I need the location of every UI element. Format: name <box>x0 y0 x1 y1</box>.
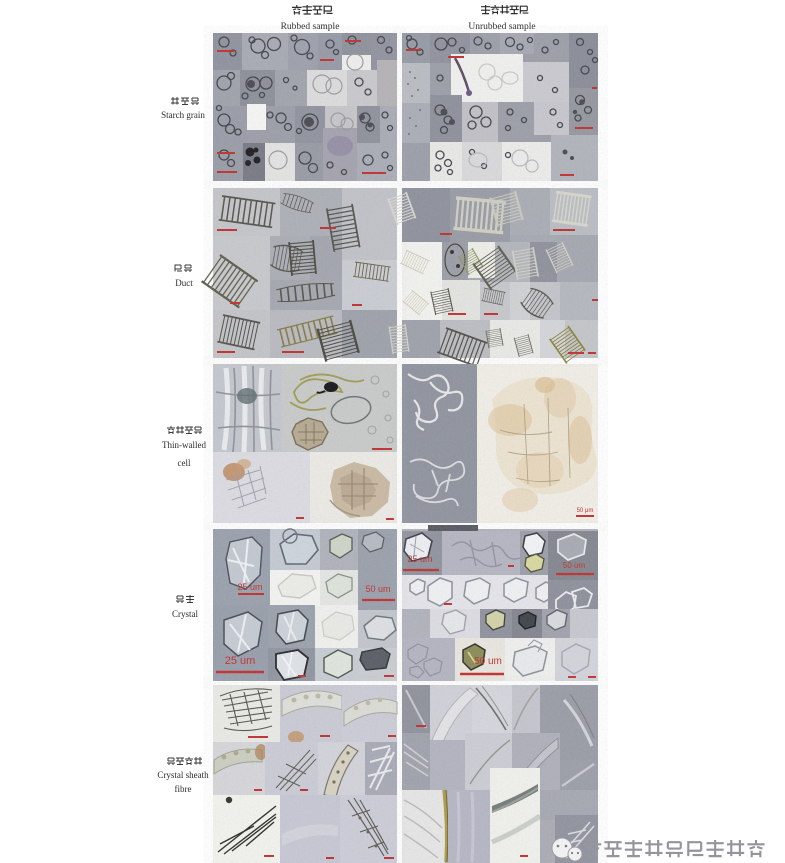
svg-text:cell: cell <box>178 458 191 468</box>
svg-text:Crystal: Crystal <box>172 609 198 619</box>
svg-text:Rubbed sample: Rubbed sample <box>281 22 340 32</box>
svg-text:Starch grain: Starch grain <box>161 110 205 120</box>
svg-text:Duct: Duct <box>175 278 193 288</box>
svg-text:Thin-walled: Thin-walled <box>162 440 206 450</box>
svg-text:fibre: fibre <box>175 784 192 794</box>
svg-text:Unrubbed sample: Unrubbed sample <box>468 22 535 32</box>
svg-text:Crystal sheath: Crystal sheath <box>157 770 209 780</box>
